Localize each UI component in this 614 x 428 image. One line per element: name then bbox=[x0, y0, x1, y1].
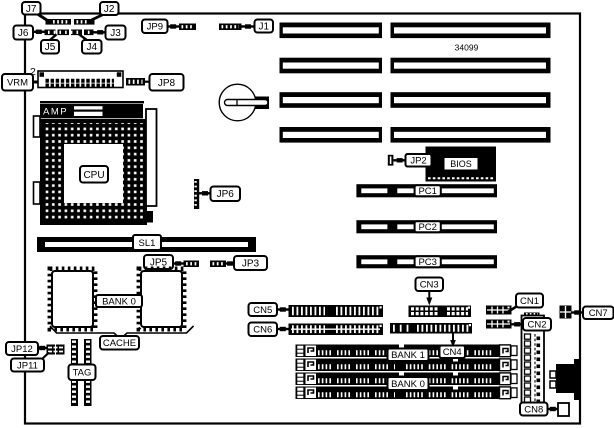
svg-text:JP9: JP9 bbox=[147, 22, 163, 33]
svg-text:J6: J6 bbox=[18, 28, 29, 39]
svg-text:PC2: PC2 bbox=[418, 222, 436, 233]
svg-text:BANK 0: BANK 0 bbox=[391, 379, 425, 390]
svg-text:JP11: JP11 bbox=[17, 360, 38, 371]
svg-text:PC3: PC3 bbox=[418, 257, 436, 268]
svg-text:JP3: JP3 bbox=[242, 259, 260, 270]
svg-text:CN1: CN1 bbox=[520, 296, 539, 307]
svg-text:BANK 1: BANK 1 bbox=[391, 350, 425, 361]
svg-text:JP2: JP2 bbox=[410, 156, 426, 167]
svg-text:CN3: CN3 bbox=[420, 280, 439, 291]
svg-text:AMP: AMP bbox=[43, 107, 68, 118]
svg-text:TAG: TAG bbox=[73, 368, 92, 379]
svg-text:CN5: CN5 bbox=[253, 305, 272, 316]
svg-text:JP6: JP6 bbox=[217, 189, 235, 200]
svg-text:JP12: JP12 bbox=[11, 344, 33, 355]
svg-text:34099: 34099 bbox=[455, 43, 479, 53]
svg-text:CN6: CN6 bbox=[253, 325, 272, 336]
svg-text:BANK 0: BANK 0 bbox=[102, 296, 136, 307]
svg-text:PC1: PC1 bbox=[418, 186, 436, 197]
svg-text:J1: J1 bbox=[259, 22, 270, 33]
svg-text:CN8: CN8 bbox=[524, 404, 543, 415]
svg-text:CPU: CPU bbox=[83, 170, 104, 181]
svg-text:CACHE: CACHE bbox=[103, 338, 136, 349]
svg-text:CN7: CN7 bbox=[589, 308, 608, 319]
svg-text:CN4: CN4 bbox=[443, 347, 462, 358]
svg-text:J7: J7 bbox=[26, 4, 37, 15]
svg-text:J2: J2 bbox=[104, 4, 115, 15]
svg-text:BIOS: BIOS bbox=[450, 159, 472, 169]
svg-text:J3: J3 bbox=[110, 28, 121, 39]
svg-text:JP8: JP8 bbox=[158, 78, 176, 89]
svg-text:J4: J4 bbox=[87, 42, 98, 53]
svg-text:CN2: CN2 bbox=[527, 320, 546, 331]
svg-text:SL1: SL1 bbox=[139, 238, 156, 249]
svg-text:J5: J5 bbox=[45, 42, 56, 53]
svg-text:VRM: VRM bbox=[7, 78, 28, 89]
